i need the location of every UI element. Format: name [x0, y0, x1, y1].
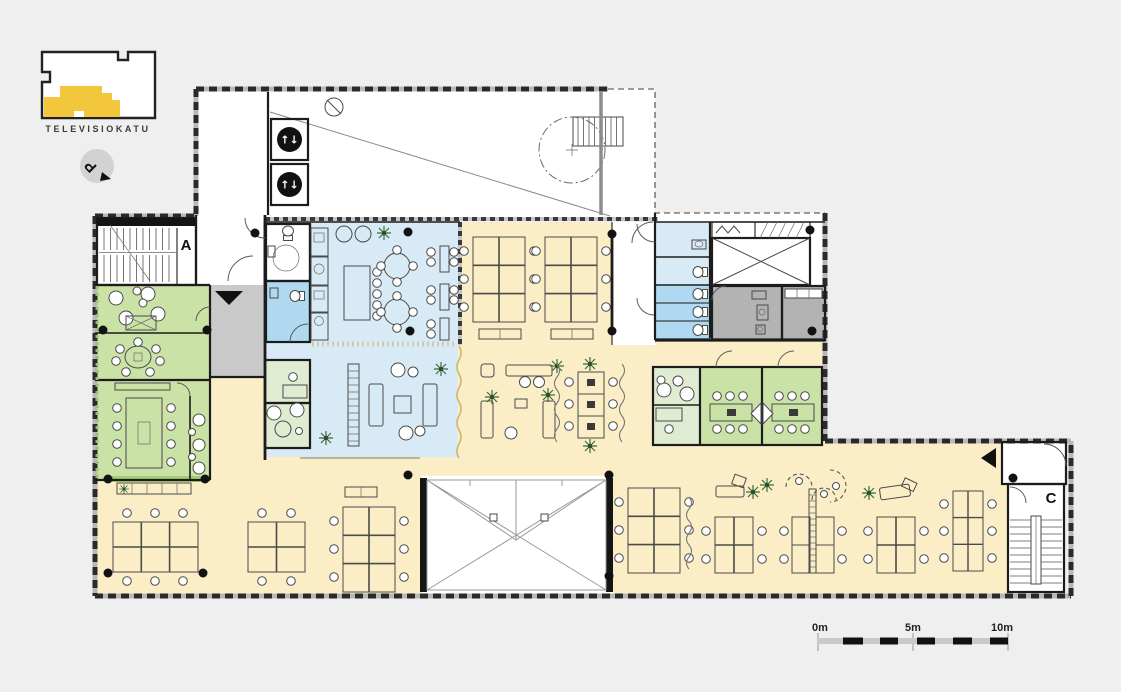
- stair-a-label: A: [181, 237, 192, 254]
- zone-entrance-hall: [196, 215, 265, 285]
- scale-label-10: 10m: [991, 622, 1013, 634]
- stair-c-label: C: [1046, 490, 1057, 507]
- desk-bank: [940, 491, 997, 571]
- floor-plan-canvas: TELEVISIOKATU P: [0, 0, 1121, 692]
- elevator-glyph: ↑↓: [280, 179, 298, 192]
- storage-shelf: [785, 289, 822, 298]
- elevator-glyph: ↑↓: [280, 134, 298, 147]
- scale-label-5: 5m: [905, 622, 921, 634]
- zone-focus-room-1: [265, 360, 310, 403]
- zone-copy-room: [712, 286, 782, 340]
- key-plan-notch: [74, 111, 84, 117]
- scale-bar: 0m 5m 10m: [812, 622, 1013, 651]
- zone-upper-block: [196, 88, 655, 218]
- key-plan: [42, 52, 155, 118]
- page: TELEVISIOKATU P: [0, 0, 1121, 692]
- zones: [95, 88, 1066, 596]
- zone-wc-small: [266, 281, 310, 342]
- street-label: TELEVISIOKATU: [45, 124, 150, 134]
- zone-vestibule-gray: [210, 285, 265, 377]
- north-indicator: P: [80, 149, 114, 183]
- scale-label-0: 0m: [812, 622, 828, 634]
